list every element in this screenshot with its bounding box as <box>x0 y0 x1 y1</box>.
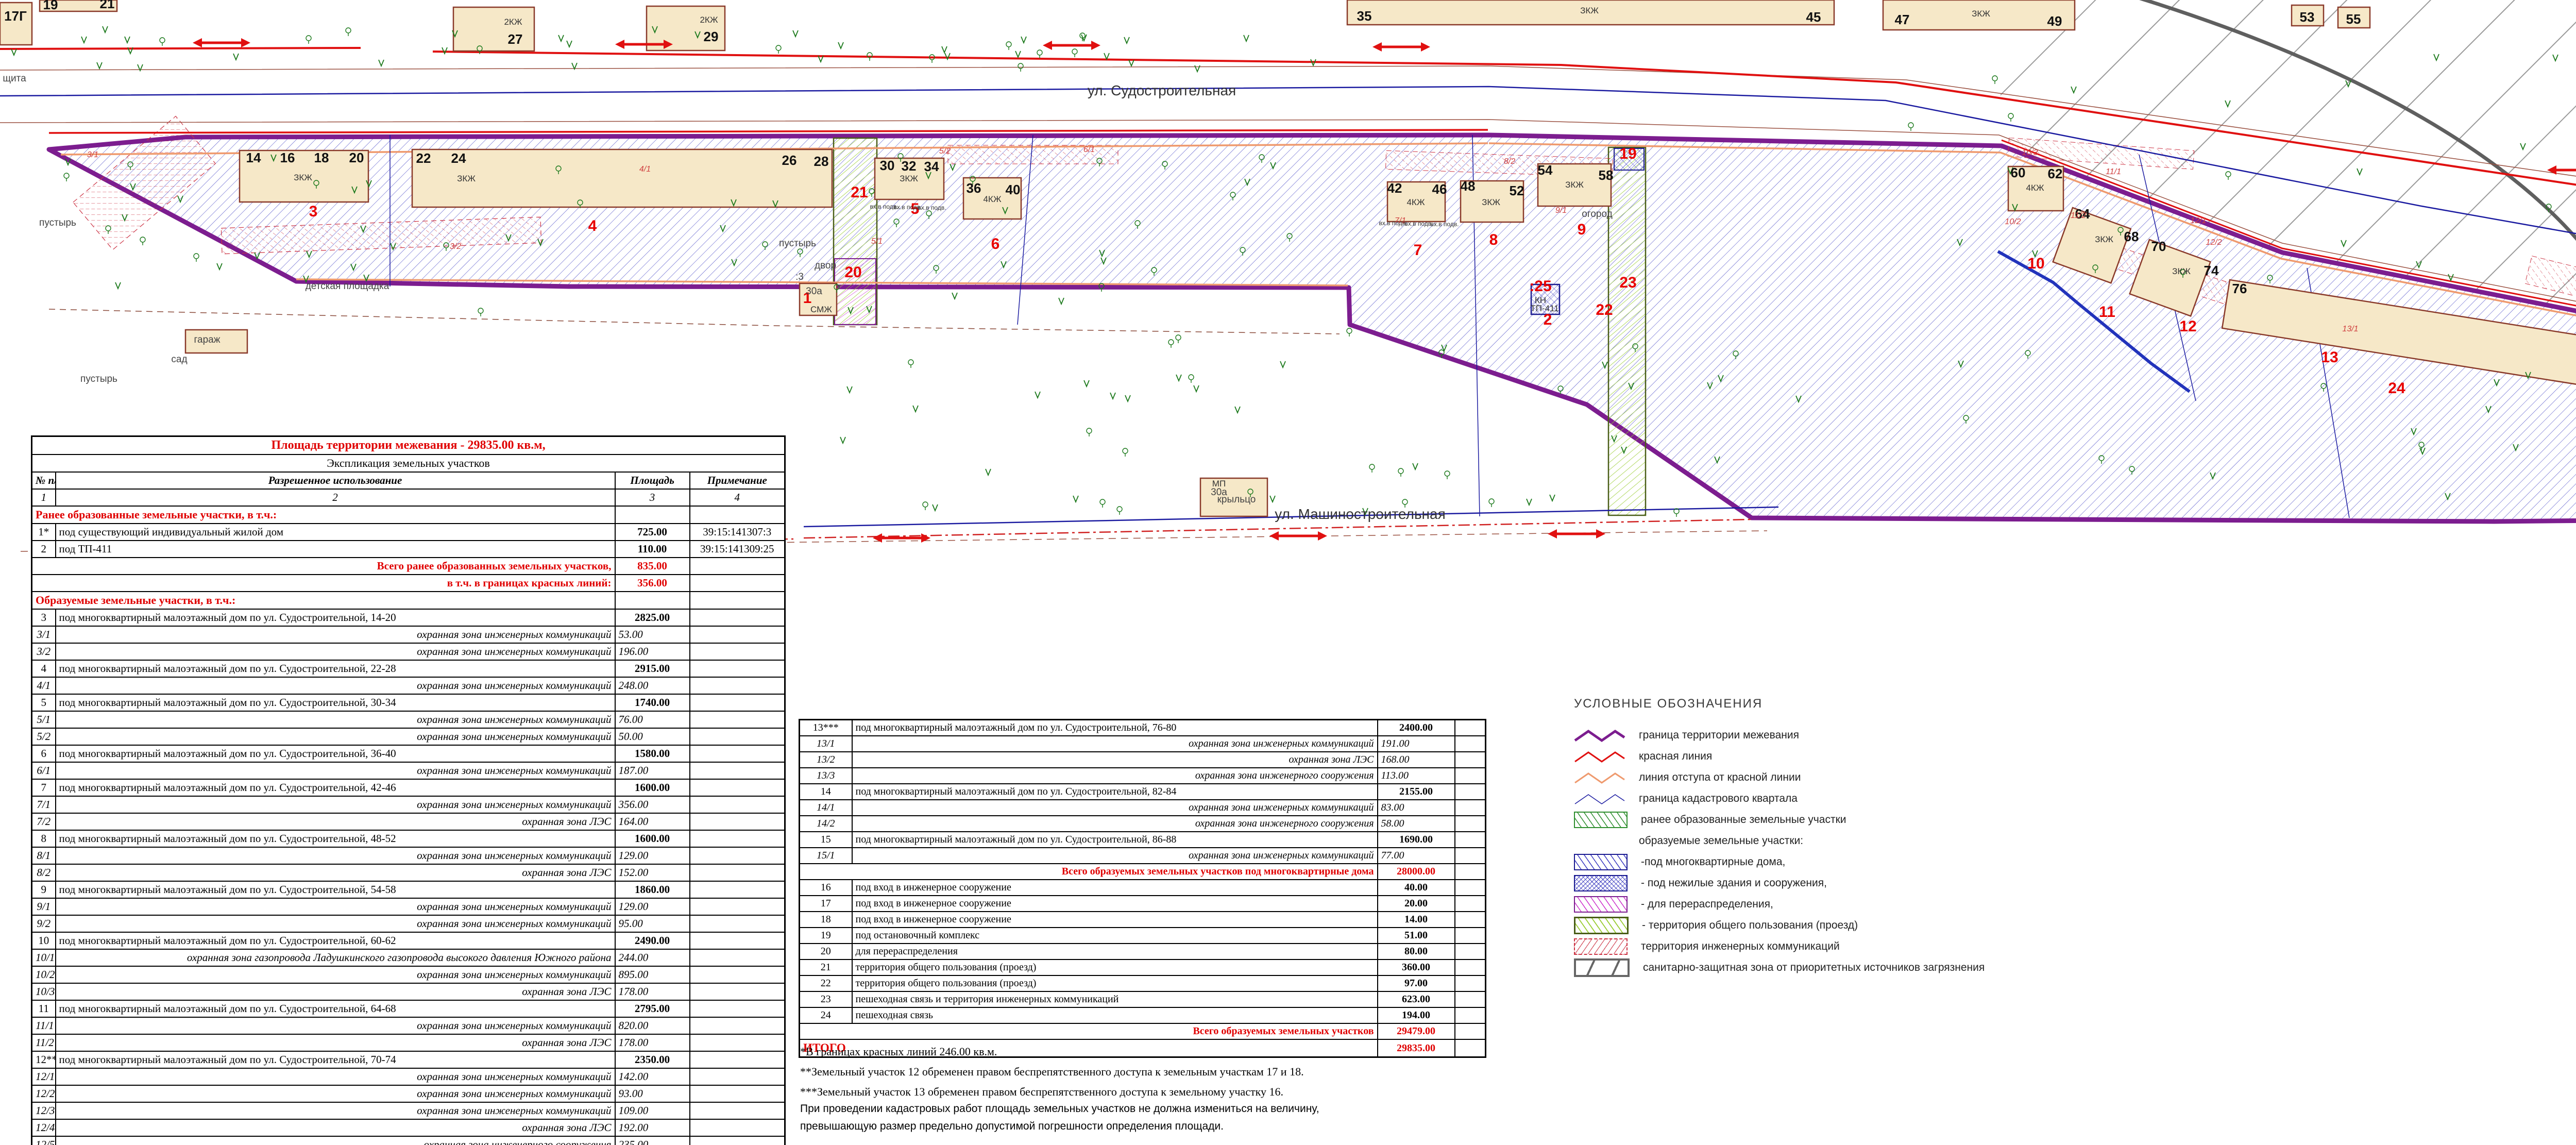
table-cell: 1* <box>32 524 56 541</box>
legend-item-label: - территория общего пользования (проезд) <box>1642 919 1858 932</box>
table-row: в т.ч. в границах красных линий:356.00 <box>32 575 785 592</box>
table-row: Экспликация земельных участков <box>32 454 785 472</box>
table-cell: 1690.00 <box>1378 832 1455 848</box>
table-cell: 80.00 <box>1378 944 1455 959</box>
map-label-place: огород <box>1582 209 1612 220</box>
table-cell <box>1455 848 1486 864</box>
map-label-rnum: 24 <box>2388 380 2405 397</box>
table-cell <box>690 558 785 575</box>
table-row: 1234 <box>32 489 785 506</box>
table-cell: 11/1 <box>32 1017 56 1034</box>
table-cell: под остановочный комплекс <box>852 928 1378 944</box>
legend-item: линия отступа от красной линии <box>1574 767 2357 788</box>
table-cell: охранная зона инженерных коммуникаций <box>56 711 615 728</box>
table-cell: 2795.00 <box>615 1000 690 1017</box>
table-cell: под многоквартирный малоэтажный дом по у… <box>852 720 1378 736</box>
map-label-bnum: 45 <box>1806 9 1821 25</box>
map-label-btype: ЗКЖ <box>2172 266 2191 276</box>
table-cell: под многоквартирный малоэтажный дом по у… <box>56 694 615 711</box>
table-cell <box>1455 880 1486 896</box>
table-cell <box>690 1051 785 1068</box>
table-cell: 12/5 <box>32 1136 56 1145</box>
table-cell: охранная зона инженерных коммуникаций <box>56 1102 615 1119</box>
map-label-btype: 2КЖ <box>504 17 522 27</box>
table-row: 14/2охранная зона инженерного сооружения… <box>800 816 1486 832</box>
table-cell <box>690 677 785 694</box>
table-cell: 58.00 <box>1378 816 1455 832</box>
table-row: 12/3охранная зона инженерных коммуникаци… <box>32 1102 785 1119</box>
table-cell: Всего образуемых земельных участков под … <box>800 864 1378 880</box>
legend-item-label: территория инженерных коммуникаций <box>1641 940 1840 953</box>
table-cell: 820.00 <box>615 1017 690 1034</box>
table-cell: под многоквартирный малоэтажный дом по у… <box>56 660 615 677</box>
table-cell: 10/2 <box>32 966 56 983</box>
table-cell: 4/1 <box>32 677 56 694</box>
table-cell <box>1455 975 1486 991</box>
table-cell: охранная зона инженерных коммуникаций <box>56 762 615 779</box>
table-cell <box>690 506 785 524</box>
table-cell: 244.00 <box>615 949 690 966</box>
table-cell <box>1455 768 1486 784</box>
table-row: 3/1охранная зона инженерных коммуникаций… <box>32 626 785 643</box>
table-cell <box>690 1085 785 1102</box>
table-cell: территория общего пользования (проезд) <box>852 975 1378 991</box>
map-label-bnum: 40 <box>1006 182 1021 197</box>
table-cell: 39:15:141307:3 <box>690 524 785 541</box>
map-label-bnum: 70 <box>2151 239 2166 254</box>
table-cell <box>690 643 785 660</box>
table-row: 12**под многоквартирный малоэтажный дом … <box>32 1051 785 1068</box>
table-cell <box>1455 944 1486 959</box>
table-cell: 2 <box>32 541 56 558</box>
table-cell <box>690 881 785 898</box>
table-cell: 248.00 <box>615 677 690 694</box>
gray-band-icon <box>1574 958 1630 977</box>
table-cell: 14.00 <box>1378 912 1455 928</box>
table-cell: Экспликация земельных участков <box>32 454 785 472</box>
table-cell <box>690 830 785 847</box>
legend-item-label: санитарно-защитная зона от приоритетных … <box>1643 962 1985 974</box>
map-label-rsub: 12/2 <box>2206 238 2222 247</box>
map-label-rsub: 11/2 <box>2071 211 2086 220</box>
table-cell: 19 <box>800 928 852 944</box>
table-row: 11/2охранная зона ЛЭС178.00 <box>32 1034 785 1051</box>
table-cell: охранная зона инженерных коммуникаций <box>56 643 615 660</box>
table-cell: 9/1 <box>32 898 56 915</box>
hatch-navy-icon <box>1574 854 1628 870</box>
table-cell: 20.00 <box>1378 896 1455 912</box>
table-cell <box>690 1017 785 1034</box>
table-row: 4/1охранная зона инженерных коммуникаций… <box>32 677 785 694</box>
table-cell: 895.00 <box>615 966 690 983</box>
table-cell: 187.00 <box>615 762 690 779</box>
table-cell: 13/2 <box>800 752 852 768</box>
map-label-place: 30а <box>806 286 822 297</box>
table-cell: 14/1 <box>800 800 852 816</box>
table-cell <box>1455 800 1486 816</box>
legend-item: граница кадастрового квартала <box>1574 788 2357 809</box>
table-row: 22территория общего пользования (проезд)… <box>800 975 1486 991</box>
table-cell: 8/2 <box>32 864 56 881</box>
table-cell: 11 <box>32 1000 56 1017</box>
map-label-rnum: 3 <box>309 203 318 220</box>
table-cell <box>615 592 690 609</box>
footnote-line: ***Земельный участок 13 обременен правом… <box>800 1085 1521 1099</box>
map-label-rsub: 5/2 <box>939 147 951 156</box>
legend-item-label: линия отступа от красной линии <box>1639 771 1801 784</box>
table-cell: охранная зона ЛЭС <box>56 983 615 1000</box>
map-label-btype: ЗКЖ <box>294 173 312 182</box>
table-cell: 192.00 <box>615 1119 690 1136</box>
table-cell <box>690 932 785 949</box>
table-cell: 235.00 <box>615 1136 690 1145</box>
map-label-place: :3 <box>795 272 804 282</box>
table-row: 9/2охранная зона инженерных коммуникаций… <box>32 915 785 932</box>
table-cell: 1580.00 <box>615 745 690 762</box>
table-cell: 14 <box>800 784 852 800</box>
map-label-place: пустырь <box>39 217 76 228</box>
table-cell: охранная зона ЛЭС <box>56 864 615 881</box>
table-cell: 4 <box>32 660 56 677</box>
zig-navy-icon <box>1574 792 1625 806</box>
table-cell: охранная зона инженерных коммуникаций <box>56 1085 615 1102</box>
legend-item-label: граница кадастрового квартала <box>1639 793 1798 805</box>
map-label-bnum: 58 <box>1599 167 1614 183</box>
map-label-bnum: 34 <box>924 159 939 174</box>
map-label-rsub: 4/1 <box>639 165 651 174</box>
table-cell: 50.00 <box>615 728 690 745</box>
map-label-place: пустырь <box>80 374 117 384</box>
table-cell: 93.00 <box>615 1085 690 1102</box>
legend-item-label: граница территории межевания <box>1639 729 1799 742</box>
legend: УСЛОВНЫЕ ОБОЗНАЧЕНИЯ граница территории … <box>1574 697 2357 978</box>
table-cell: 13/1 <box>800 736 852 752</box>
map-label-btype: ЗКЖ <box>1565 180 1584 190</box>
table-cell: охранная зона ЛЭС <box>56 1119 615 1136</box>
map-label-bnum: 26 <box>782 153 797 168</box>
map-label-btype: 4КЖ <box>2026 183 2044 193</box>
table-cell: Примечание <box>690 472 785 489</box>
table-cell: 2 <box>56 489 615 506</box>
legend-item: ранее образованные земельные участки <box>1574 809 2357 830</box>
table-cell: 28000.00 <box>1378 864 1455 880</box>
table-row: 11/1охранная зона инженерных коммуникаци… <box>32 1017 785 1034</box>
table-cell <box>1455 912 1486 928</box>
table-cell: 6/1 <box>32 762 56 779</box>
table-cell: под многоквартирный малоэтажный дом по у… <box>56 881 615 898</box>
map-label-rnum: 7 <box>1414 242 1422 259</box>
table-row: 3/2охранная зона инженерных коммуникаций… <box>32 643 785 660</box>
table-row: 15/1охранная зона инженерных коммуникаци… <box>800 848 1486 864</box>
table-cell <box>690 745 785 762</box>
table-cell <box>690 1000 785 1017</box>
table-cell: под многоквартирный малоэтажный дом по у… <box>56 932 615 949</box>
red-line-south <box>49 130 1488 133</box>
table-cell: 191.00 <box>1378 736 1455 752</box>
table-cell: 129.00 <box>615 847 690 864</box>
map-label-bnum: 47 <box>1895 12 1910 27</box>
legend-items: граница территории межеваниякрасная лини… <box>1574 725 2357 978</box>
table-cell <box>690 694 785 711</box>
map-label-btype: ЗКЖ <box>1482 197 1500 207</box>
map-label-rnum: 19 <box>1619 145 1636 162</box>
map-label-rnum: 12 <box>2179 318 2196 335</box>
zig-purple-icon <box>1574 728 1625 743</box>
table-cell: 18 <box>800 912 852 928</box>
map-label-rsub: 11/1 <box>2106 167 2121 176</box>
map-label-rsub: 10/3 <box>2022 148 2038 157</box>
table-cell: 2915.00 <box>615 660 690 677</box>
paragraph-line: При проведении кадастровых работ площадь… <box>800 1103 1521 1115</box>
table-cell: 7 <box>32 779 56 796</box>
table-cell: 142.00 <box>615 1068 690 1085</box>
table-cell: 178.00 <box>615 1034 690 1051</box>
table-cell <box>1455 864 1486 880</box>
table-cell: охранная зона инженерного сооружения <box>56 1136 615 1145</box>
table-cell: 11/2 <box>32 1034 56 1051</box>
table-row: 16под вход в инженерное сооружение40.00 <box>800 880 1486 896</box>
table-cell: пешеходная связь и территория инженерных… <box>852 991 1378 1007</box>
table-cell: пешеходная связь <box>852 1007 1378 1023</box>
table-cell: 16 <box>800 880 852 896</box>
table-cell <box>690 592 785 609</box>
cross-navy-icon <box>1574 875 1628 891</box>
table-cell: охранная зона инженерных коммуникаций <box>56 847 615 864</box>
map-label-bnum: 16 <box>280 150 295 165</box>
table-cell <box>690 949 785 966</box>
table-row: 7/2охранная зона ЛЭС164.00 <box>32 813 785 830</box>
table-cell <box>690 813 785 830</box>
table-cell <box>1455 896 1486 912</box>
table-cell <box>1455 928 1486 944</box>
table-cell: 95.00 <box>615 915 690 932</box>
table-cell <box>690 762 785 779</box>
table-row: 10/1охранная зона газопровода Ладушкинск… <box>32 949 785 966</box>
table-cell: 1600.00 <box>615 830 690 847</box>
table-row: 19под остановочный комплекс51.00 <box>800 928 1486 944</box>
map-label-bnum: 28 <box>814 154 829 169</box>
table-cell <box>690 728 785 745</box>
table-cell: под многоквартирный малоэтажный дом по у… <box>56 609 615 626</box>
table-cell: под вход в инженерное сооружение <box>852 912 1378 928</box>
table-cell: охранная зона инженерных коммуникаций <box>56 796 615 813</box>
table-cell: для перераспределения <box>852 944 1378 959</box>
map-label-bnum: 49 <box>2047 13 2062 29</box>
table-cell <box>690 1136 785 1145</box>
map-label-btype: ЗКЖ <box>2095 234 2113 244</box>
table-cell: 10 <box>32 932 56 949</box>
table-cell: охранная зона инженерных коммуникаций <box>56 1068 615 1085</box>
table-cell: 623.00 <box>1378 991 1455 1007</box>
table-cell: под многоквартирный малоэтажный дом по у… <box>56 745 615 762</box>
map-label-btype: ЗКЖ <box>457 174 476 183</box>
table-cell <box>690 1119 785 1136</box>
table-row: 3под многоквартирный малоэтажный дом по … <box>32 609 785 626</box>
table-cell <box>1455 832 1486 848</box>
table-cell: охранная зона инженерного сооружения <box>852 816 1378 832</box>
cadastral-note-paragraph: При проведении кадастровых работ площадь… <box>800 1103 1521 1138</box>
table-cell <box>1455 752 1486 768</box>
table-row: 11под многоквартирный малоэтажный дом по… <box>32 1000 785 1017</box>
table-cell: 5/2 <box>32 728 56 745</box>
table-cell: 40.00 <box>1378 880 1455 896</box>
table-cell: 2490.00 <box>615 932 690 949</box>
land-parcel-table-right: 13***под многоквартирный малоэтажный дом… <box>799 719 1485 1058</box>
table-cell: 12** <box>32 1051 56 1068</box>
map-label-place: гараж <box>194 334 221 345</box>
table-cell: под существующий индивидуальный жилой до… <box>56 524 615 541</box>
table-row: 6/1охранная зона инженерных коммуникаций… <box>32 762 785 779</box>
table-cell: Площадь <box>615 472 690 489</box>
legend-item: красная линия <box>1574 746 2357 767</box>
map-label-rsub: 3/1 <box>87 150 98 159</box>
footnote-line: **Земельный участок 12 обременен правом … <box>800 1065 1521 1079</box>
table-cell <box>1455 991 1486 1007</box>
table-cell: 6 <box>32 745 56 762</box>
table-cell: в т.ч. в границах красных линий: <box>32 575 615 592</box>
table-cell: 2350.00 <box>615 1051 690 1068</box>
table-row: 6под многоквартирный малоэтажный дом по … <box>32 745 785 762</box>
table-row: 18под вход в инженерное сооружение14.00 <box>800 912 1486 928</box>
map-label-bnum: 19 <box>43 0 58 12</box>
map-label-place: двор <box>815 260 836 271</box>
table-row: 5/1охранная зона инженерных коммуникаций… <box>32 711 785 728</box>
table-row: Площадь территории межевания - 29835.00 … <box>32 436 785 455</box>
table-cell <box>690 779 785 796</box>
table-row: Всего образуемых земельных участков под … <box>800 864 1486 880</box>
map-label-place: пустырь <box>779 238 816 249</box>
table-cell: охранная зона инженерных коммуникаций <box>56 1017 615 1034</box>
map-label-rnum: 22 <box>1596 301 1613 318</box>
map-label-rnum: 23 <box>1619 274 1636 291</box>
table-cell <box>690 864 785 881</box>
table-row: 12/4охранная зона ЛЭС192.00 <box>32 1119 785 1136</box>
map-label-bnum: 17Г <box>4 8 27 24</box>
map-label-bnum: 46 <box>1432 181 1447 197</box>
legend-item-label: ранее образованные земельные участки <box>1641 814 1846 826</box>
table-row: 8/2охранная зона ЛЭС152.00 <box>32 864 785 881</box>
map-label-vhp: вх.в подв. <box>1404 220 1433 227</box>
table-row: 8/1охранная зона инженерных коммуникаций… <box>32 847 785 864</box>
map-label-bnum: 32 <box>902 158 917 174</box>
table-cell: под вход в инженерное сооружение <box>852 880 1378 896</box>
legend-item: - территория общего пользования (проезд) <box>1574 915 2357 936</box>
table-cell <box>1455 959 1486 975</box>
table-cell: охранная зона газопровода Ладушкинского … <box>56 949 615 966</box>
map-label-bnum: 22 <box>416 150 431 166</box>
table-cell <box>690 1068 785 1085</box>
table-row: 15под многоквартирный малоэтажный дом по… <box>800 832 1486 848</box>
map-label-rnum: 10 <box>2027 255 2044 272</box>
table-row: 7/1охранная зона инженерных коммуникаций… <box>32 796 785 813</box>
table-cell: 13*** <box>800 720 852 736</box>
table-row: 10/3охранная зона ЛЭС178.00 <box>32 983 785 1000</box>
table-cell: охранная зона инженерного сооружения <box>852 768 1378 784</box>
table-cell <box>690 966 785 983</box>
table-cell: 5/1 <box>32 711 56 728</box>
table-row: 24пешеходная связь194.00 <box>800 1007 1486 1023</box>
table-cell: охранная зона ЛЭС <box>852 752 1378 768</box>
table-cell: 15 <box>800 832 852 848</box>
table-row: 8под многоквартирный малоэтажный дом по … <box>32 830 785 847</box>
table-cell: 23 <box>800 991 852 1007</box>
table-cell: 1860.00 <box>615 881 690 898</box>
table-row: 10/2охранная зона инженерных коммуникаци… <box>32 966 785 983</box>
map-label-rsub: 8/2 <box>1504 157 1515 166</box>
table-cell: 51.00 <box>1378 928 1455 944</box>
legend-item-label: красная линия <box>1639 750 1712 763</box>
table-cell: 178.00 <box>615 983 690 1000</box>
table: Площадь территории межевания - 29835.00 … <box>31 435 786 1145</box>
table-row: 12/1охранная зона инженерных коммуникаци… <box>32 1068 785 1085</box>
table-cell: 7/1 <box>32 796 56 813</box>
table-cell <box>1455 1007 1486 1023</box>
table-row: 4под многоквартирный малоэтажный дом по … <box>32 660 785 677</box>
map-label-bnum: 29 <box>704 29 719 44</box>
table-cell: 360.00 <box>1378 959 1455 975</box>
table-cell <box>1455 784 1486 800</box>
table-cell: № п/п <box>32 472 56 489</box>
table-cell: 2825.00 <box>615 609 690 626</box>
table-cell <box>1455 720 1486 736</box>
table-cell: 7/2 <box>32 813 56 830</box>
table-row: 13/1охранная зона инженерных коммуникаци… <box>800 736 1486 752</box>
table-row: Всего образуемых земельных участков29479… <box>800 1023 1486 1039</box>
legend-item-label: - под нежилые здания и сооружения, <box>1641 877 1827 889</box>
map-label-btype: 4КЖ <box>983 194 1001 204</box>
map-label-bnum: 54 <box>1538 162 1553 178</box>
table-cell: 14/2 <box>800 816 852 832</box>
table-row: 9/1охранная зона инженерных коммуникаций… <box>32 898 785 915</box>
table-cell: охранная зона инженерных коммуникаций <box>56 898 615 915</box>
table-cell: под многоквартирный малоэтажный дом по у… <box>56 1000 615 1017</box>
map-label-btype: СМЖ <box>810 305 832 314</box>
map-label-rsub: 3/2 <box>450 242 461 251</box>
map-label-rnum: 11 <box>2099 304 2115 321</box>
map-label-street: ул. Машиностроительная <box>1275 506 1446 522</box>
table-row: 14под многоквартирный малоэтажный дом по… <box>800 784 1486 800</box>
table-row: 2под ТП-411110.0039:15:141309:25 <box>32 541 785 558</box>
table-row: 5/2охранная зона инженерных коммуникаций… <box>32 728 785 745</box>
table-row: 7под многоквартирный малоэтажный дом по … <box>32 779 785 796</box>
table-cell: охранная зона инженерных коммуникаций <box>56 915 615 932</box>
table-cell: под многоквартирный малоэтажный дом по у… <box>56 830 615 847</box>
map-label-bnum: 62 <box>2048 166 2063 181</box>
map-label-rsub: 12/1 <box>2190 216 2206 225</box>
table-cell <box>690 898 785 915</box>
footnotes: *В границах красных линий 246.00 кв.м.**… <box>800 1045 1521 1105</box>
table-cell: 1740.00 <box>615 694 690 711</box>
hatch-magenta-icon <box>1574 896 1628 913</box>
table-cell: 725.00 <box>615 524 690 541</box>
table-cell: под многоквартирный малоэтажный дом по у… <box>852 832 1378 848</box>
table-cell: 10/1 <box>32 949 56 966</box>
table-cell <box>690 575 785 592</box>
table-cell: охранная зона ЛЭС <box>56 813 615 830</box>
table-cell: 8 <box>32 830 56 847</box>
map-label-rnum: 21 <box>851 184 868 201</box>
map-label-bnum: 30 <box>880 158 895 173</box>
table-cell <box>690 915 785 932</box>
land-parcel-table-left: Площадь территории межевания - 29835.00 … <box>31 435 784 1145</box>
table-cell: 12/2 <box>32 1085 56 1102</box>
map-label-btype: 2КЖ <box>700 15 718 25</box>
table-cell: 194.00 <box>1378 1007 1455 1023</box>
footnote-line: *В границах красных линий 246.00 кв.м. <box>800 1045 1521 1058</box>
map-label-rnum: 2 <box>1544 311 1552 328</box>
legend-item: образуемые земельные участки: <box>1574 830 2357 851</box>
legend-item: - под нежилые здания и сооружения, <box>1574 872 2357 894</box>
